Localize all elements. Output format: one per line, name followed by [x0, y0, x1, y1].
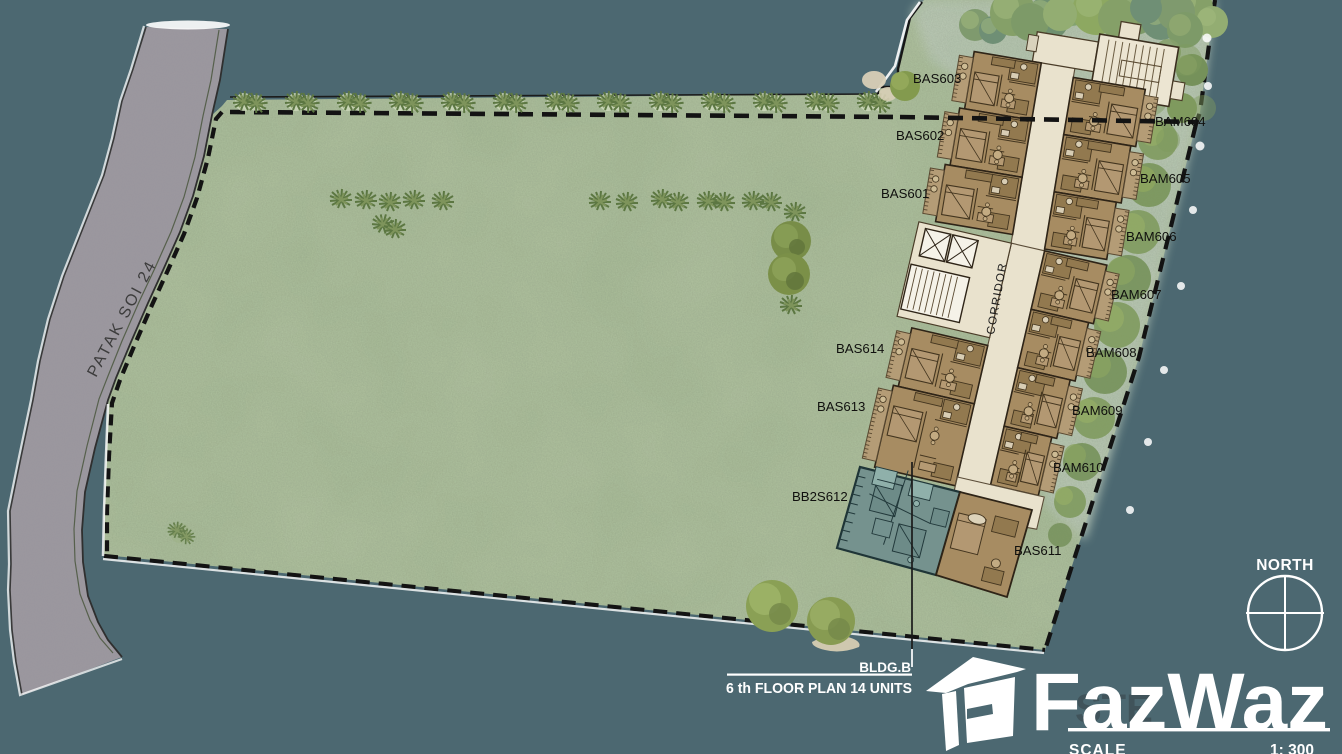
svg-text:BLDG.B: BLDG.B	[859, 660, 911, 675]
svg-text:BAM606: BAM606	[1126, 229, 1177, 244]
svg-text:FazWaz: FazWaz	[1031, 657, 1328, 748]
svg-text:SCALE: SCALE	[1069, 742, 1127, 754]
svg-text:BAS601: BAS601	[881, 186, 929, 201]
svg-text:BAM604: BAM604	[1155, 114, 1206, 129]
svg-text:6 th FLOOR PLAN 14 UNITS: 6 th FLOOR PLAN 14 UNITS	[726, 680, 912, 697]
svg-text:BAM607: BAM607	[1111, 287, 1162, 302]
svg-text:NORTH: NORTH	[1256, 557, 1314, 574]
svg-text:BAM608: BAM608	[1086, 345, 1137, 360]
svg-text:BAM610: BAM610	[1053, 460, 1104, 475]
svg-text:BAS611: BAS611	[1014, 543, 1061, 558]
svg-text:BAS602: BAS602	[896, 128, 944, 143]
svg-text:BAM609: BAM609	[1072, 403, 1123, 418]
svg-text:BAS614: BAS614	[836, 341, 884, 356]
svg-text:BAS603: BAS603	[913, 71, 961, 86]
svg-text:1: 300: 1: 300	[1270, 742, 1314, 754]
svg-text:BAS613: BAS613	[817, 399, 865, 414]
svg-text:BB2S612: BB2S612	[792, 489, 848, 504]
svg-text:BAM605: BAM605	[1140, 171, 1191, 186]
